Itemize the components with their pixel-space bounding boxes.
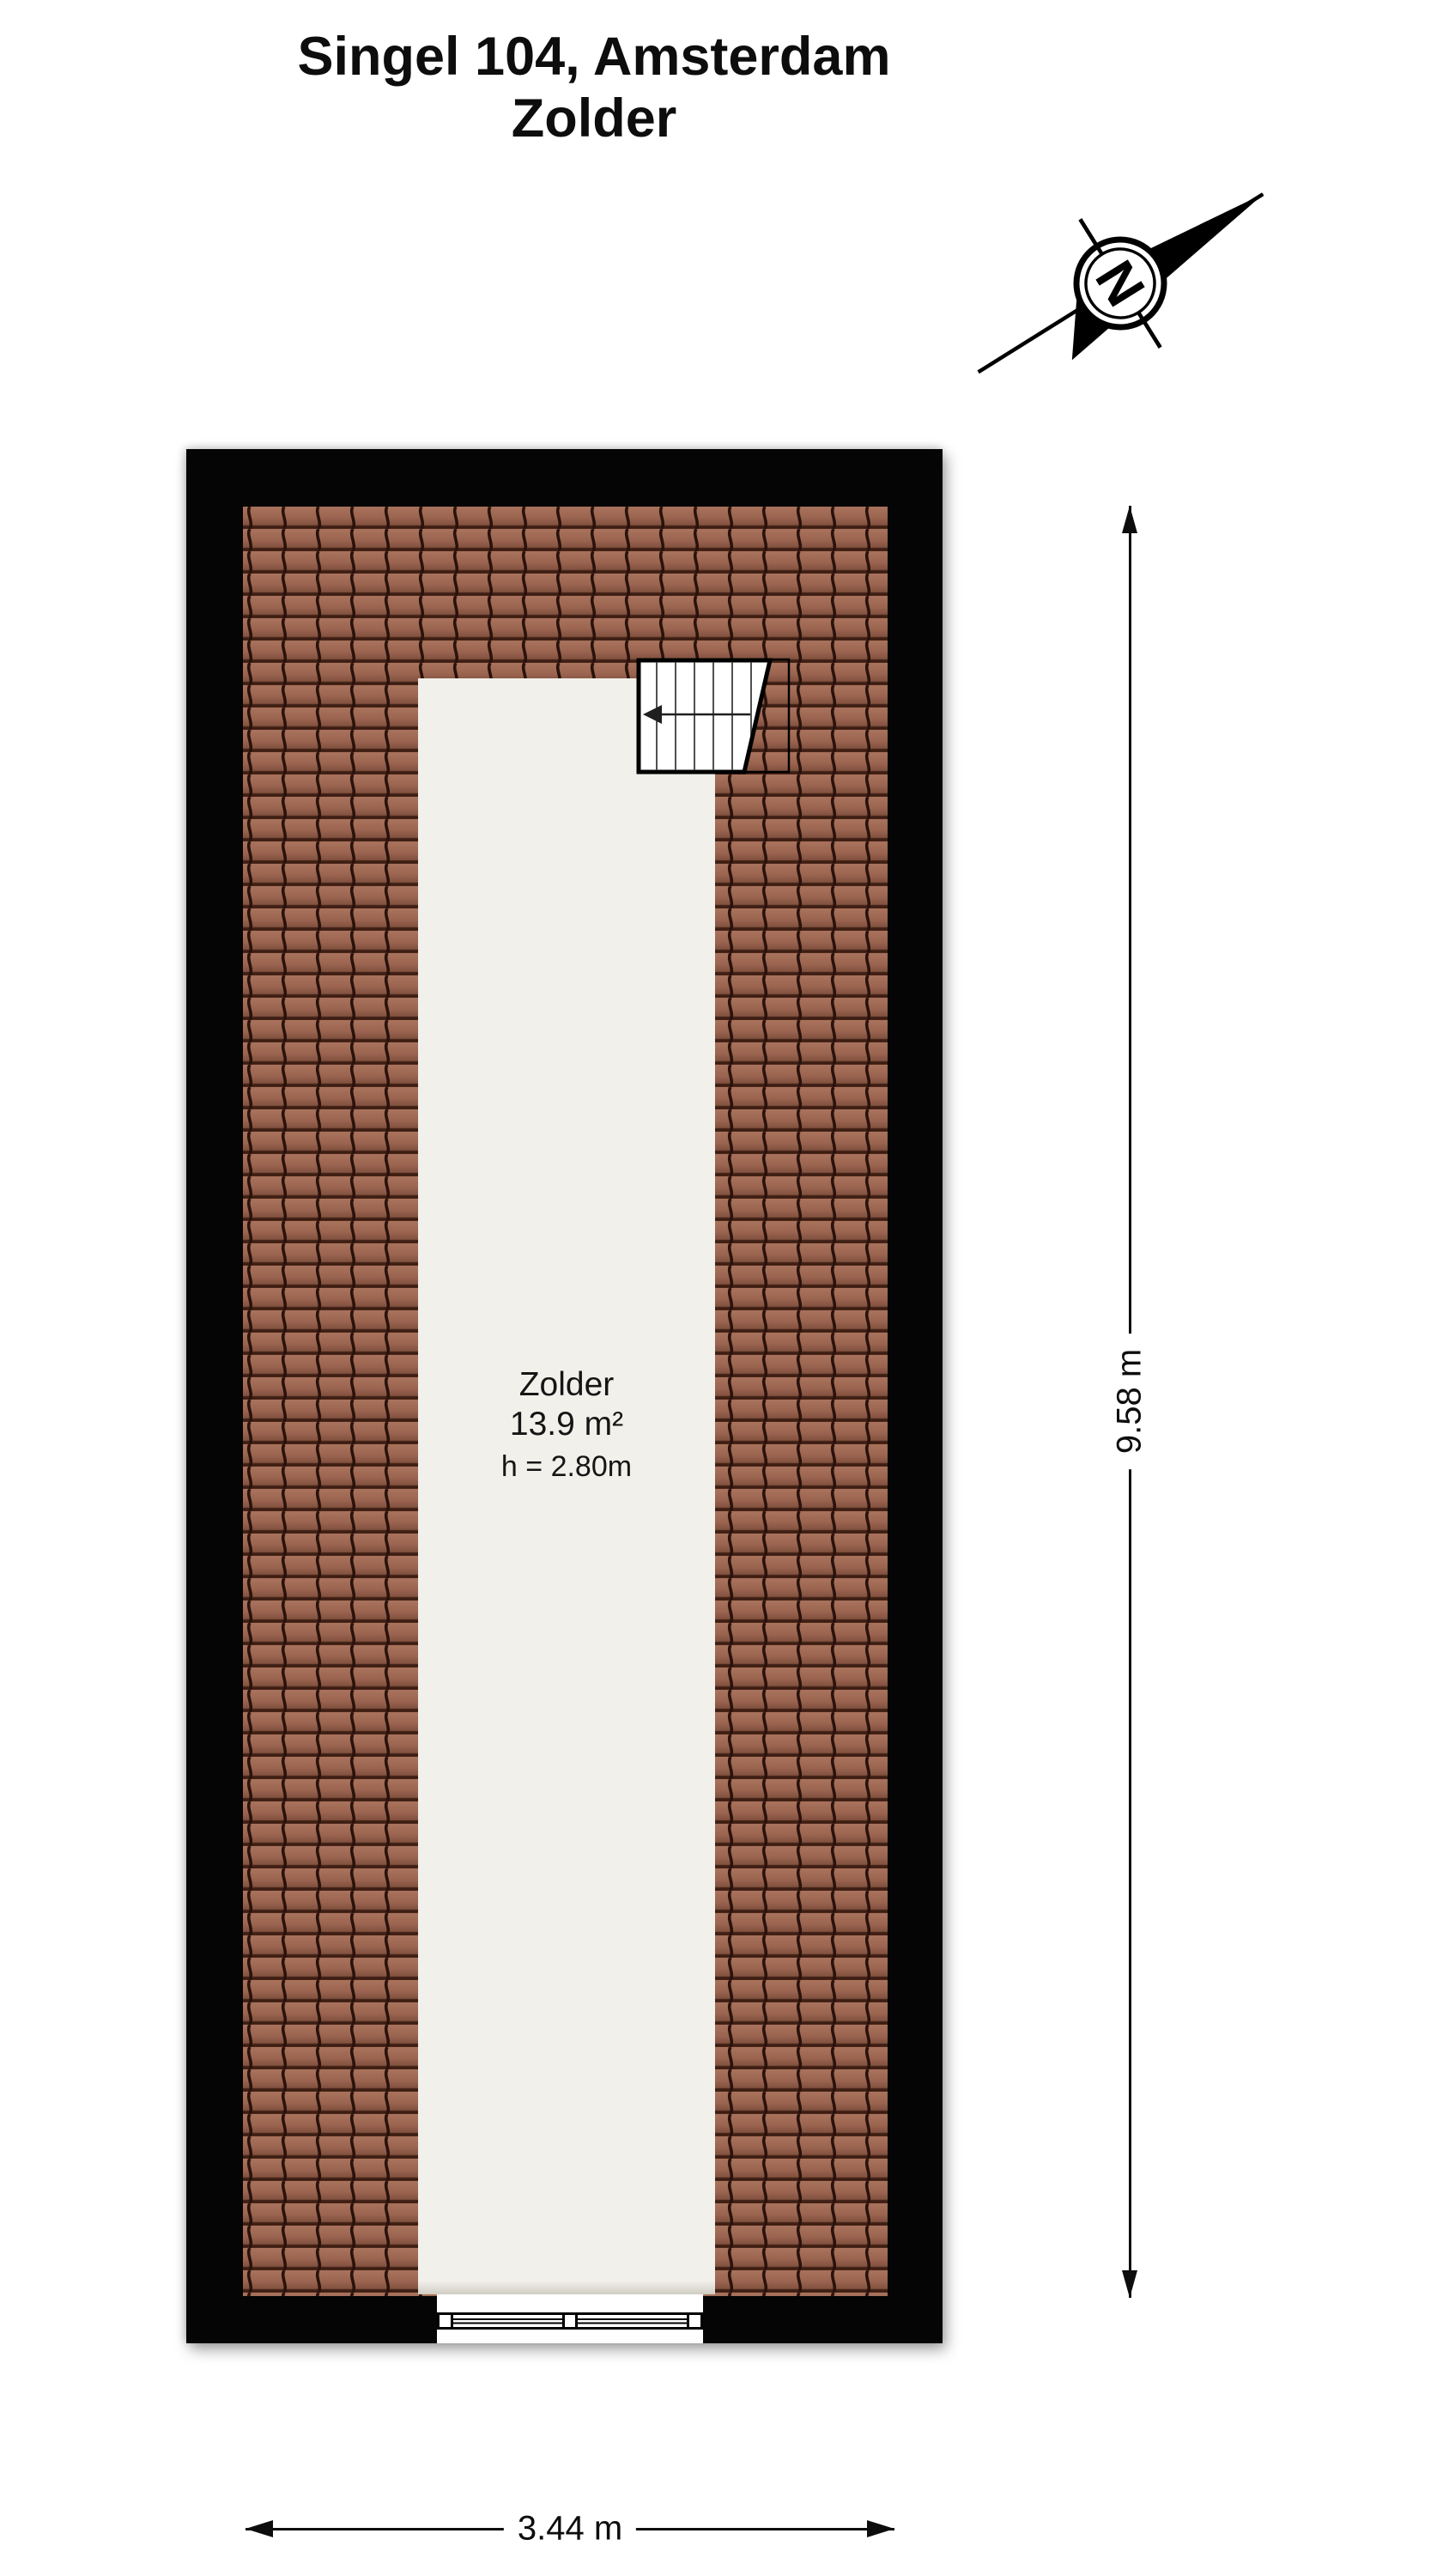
room-bottom-shadow	[418, 2281, 715, 2294]
page: { "title": { "line1": "Singel 104, Amste…	[0, 0, 1449, 2576]
window-pane	[453, 2315, 562, 2327]
arrow-left-icon	[246, 2520, 273, 2537]
title-floor: Zolder	[298, 88, 891, 149]
arrow-down-icon	[1122, 2270, 1137, 2298]
room-zolder: Zolder 13.9 m² h = 2.80m	[418, 678, 715, 2294]
compass-north-icon: N	[961, 163, 1288, 395]
window-frame-segment	[689, 2315, 700, 2327]
floor-plan-title: Singel 104, Amsterdam Zolder	[298, 26, 891, 149]
dimension-label-width: 3.44 m	[504, 2506, 636, 2552]
floor-plan: Zolder 13.9 m² h = 2.80m	[186, 449, 943, 2343]
room-label: Zolder 13.9 m² h = 2.80m	[418, 1365, 715, 1489]
window-frame-segment	[565, 2315, 575, 2327]
window-pane	[578, 2315, 687, 2327]
dimension-label-height: 9.58 m	[1106, 1334, 1155, 1469]
staircase-icon	[633, 655, 804, 780]
arrow-right-icon	[867, 2520, 894, 2537]
window-glazing	[437, 2312, 703, 2330]
arrow-up-icon	[1122, 506, 1137, 533]
window	[437, 2294, 703, 2343]
title-address: Singel 104, Amsterdam	[298, 26, 891, 88]
room-ceiling-height: h = 2.80m	[418, 1444, 715, 1489]
room-area: 13.9 m²	[418, 1405, 715, 1444]
window-frame-segment	[440, 2315, 451, 2327]
room-name: Zolder	[418, 1365, 715, 1405]
